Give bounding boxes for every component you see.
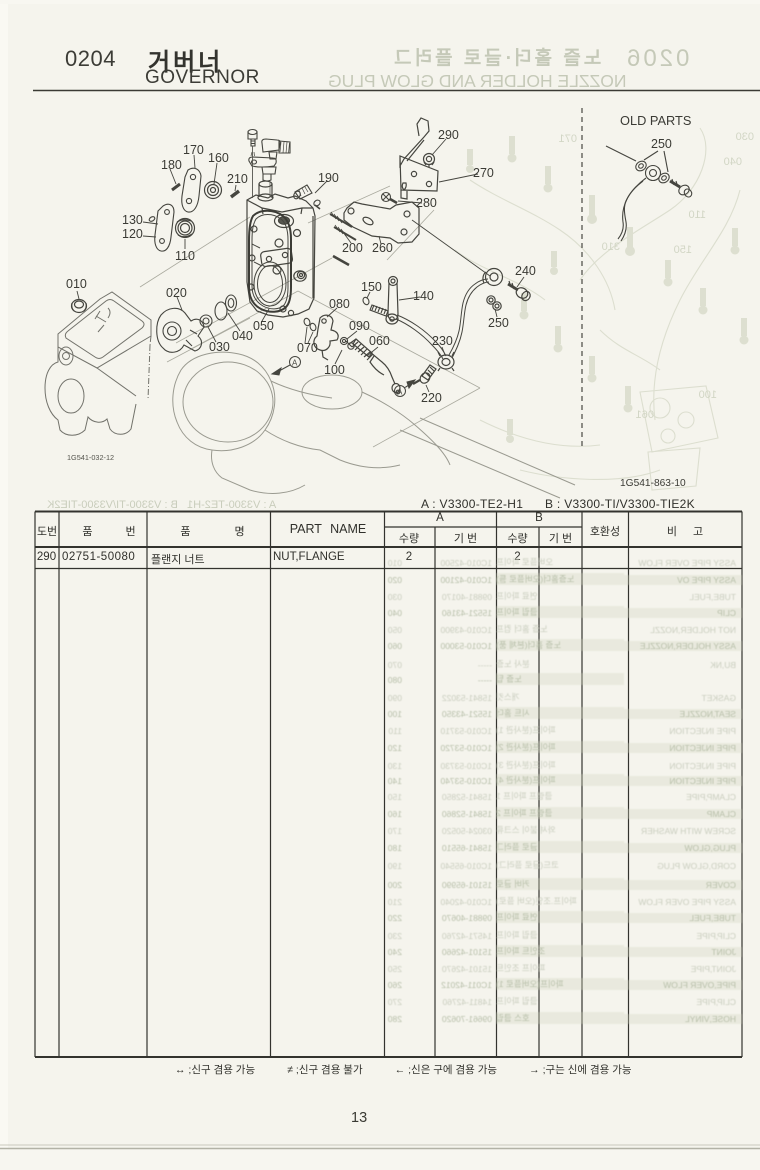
svg-text:250: 250 <box>651 137 672 151</box>
svg-text:200: 200 <box>342 241 363 255</box>
svg-text:070: 070 <box>297 341 318 355</box>
svg-text:170: 170 <box>183 143 204 157</box>
svg-text:120: 120 <box>122 227 143 241</box>
svg-text:010: 010 <box>66 277 87 291</box>
svg-text:110: 110 <box>688 209 706 221</box>
svg-text:240: 240 <box>515 264 536 278</box>
svg-text:020: 020 <box>166 286 187 300</box>
svg-text:061: 061 <box>636 409 654 421</box>
svg-text:040: 040 <box>232 329 253 343</box>
svg-text:190: 190 <box>318 171 339 185</box>
svg-text:250: 250 <box>488 316 509 330</box>
svg-text:140: 140 <box>413 289 434 303</box>
svg-text:1G541-863-10: 1G541-863-10 <box>620 478 686 489</box>
svg-text:150: 150 <box>361 280 382 294</box>
svg-text:071: 071 <box>559 133 577 145</box>
svg-text:OLD PARTS: OLD PARTS <box>620 113 691 128</box>
svg-text:080: 080 <box>329 297 350 311</box>
svg-text:160: 160 <box>208 151 229 165</box>
svg-text:030: 030 <box>209 340 230 354</box>
svg-text:310: 310 <box>602 241 620 253</box>
svg-text:050: 050 <box>253 319 274 333</box>
svg-text:060: 060 <box>369 334 390 348</box>
svg-text:100: 100 <box>699 389 717 401</box>
svg-text:040: 040 <box>724 156 742 168</box>
svg-text:290: 290 <box>438 128 459 142</box>
svg-text:1G541-032-12: 1G541-032-12 <box>67 453 114 462</box>
svg-text:220: 220 <box>421 391 442 405</box>
svg-text:150: 150 <box>674 244 692 256</box>
svg-text:270: 270 <box>473 166 494 180</box>
svg-text:090: 090 <box>349 319 370 333</box>
svg-text:A: A <box>292 359 298 368</box>
svg-text:100: 100 <box>324 363 345 377</box>
svg-text:280: 280 <box>416 196 437 210</box>
svg-text:180: 180 <box>161 158 182 172</box>
svg-text:210: 210 <box>227 172 248 186</box>
svg-text:030: 030 <box>736 131 754 143</box>
svg-text:110: 110 <box>175 249 195 263</box>
svg-text:230: 230 <box>432 334 453 348</box>
svg-text:A: A <box>397 388 403 397</box>
svg-text:260: 260 <box>372 241 393 255</box>
svg-text:130: 130 <box>122 213 143 227</box>
